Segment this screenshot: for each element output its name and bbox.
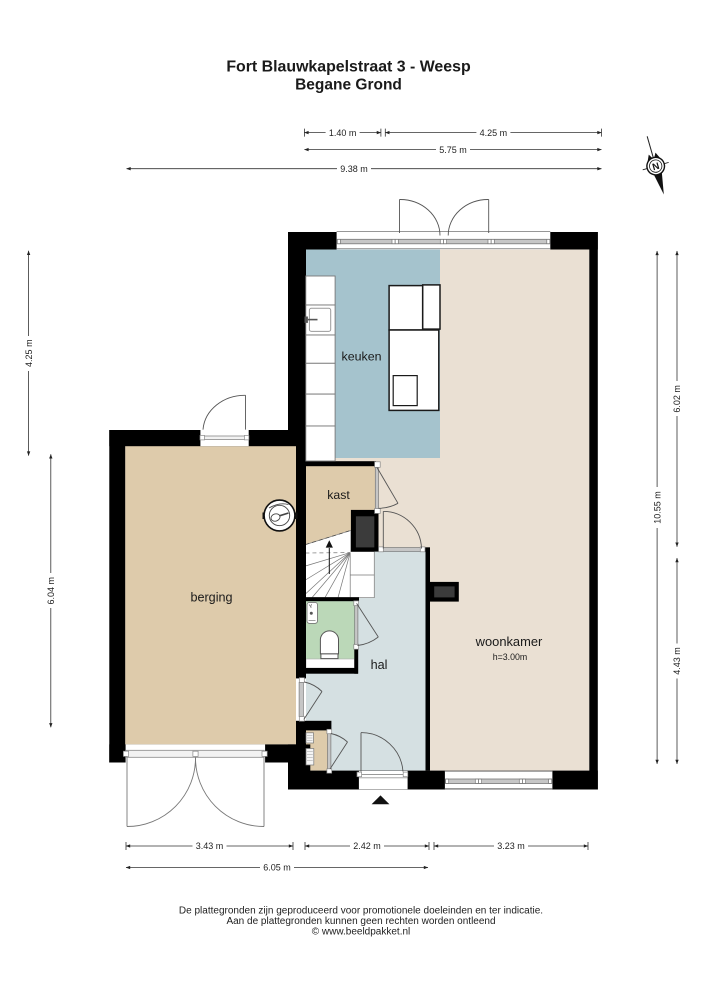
svg-text:3.23 m: 3.23 m	[497, 841, 525, 851]
svg-text:De plattegronden zijn geproduc: De plattegronden zijn geproduceerd voor …	[179, 906, 543, 917]
svg-text:kast: kast	[327, 488, 350, 502]
svg-text:5.75 m: 5.75 m	[439, 145, 467, 155]
svg-text:6.04 m: 6.04 m	[46, 577, 56, 605]
svg-text:Fort Blauwkapelstraat 3 - Wees: Fort Blauwkapelstraat 3 - Weesp	[226, 59, 471, 76]
svg-text:1.40 m: 1.40 m	[329, 128, 357, 138]
svg-text:keuken: keuken	[342, 350, 382, 364]
svg-text:Aan de plattegronden kunnen ge: Aan de plattegronden kunnen geen rechten…	[226, 916, 495, 927]
svg-text:4.43 m: 4.43 m	[672, 647, 682, 675]
svg-text:h=3.00m: h=3.00m	[493, 652, 527, 662]
svg-text:berging: berging	[190, 591, 232, 605]
svg-text:3.43 m: 3.43 m	[196, 841, 224, 851]
svg-text:© www.beeldpakket.nl: © www.beeldpakket.nl	[312, 927, 411, 938]
svg-text:6.02 m: 6.02 m	[672, 385, 682, 413]
svg-text:9.38 m: 9.38 m	[340, 164, 368, 174]
svg-text:6.05 m: 6.05 m	[263, 863, 291, 873]
svg-text:2.42 m: 2.42 m	[353, 841, 381, 851]
svg-text:10.55 m: 10.55 m	[652, 491, 662, 524]
svg-text:hal: hal	[371, 658, 388, 672]
svg-text:4.25 m: 4.25 m	[480, 128, 508, 138]
svg-text:woonkamer: woonkamer	[475, 634, 543, 649]
svg-text:Begane Grond: Begane Grond	[295, 77, 402, 94]
svg-text:4.25 m: 4.25 m	[24, 339, 34, 367]
